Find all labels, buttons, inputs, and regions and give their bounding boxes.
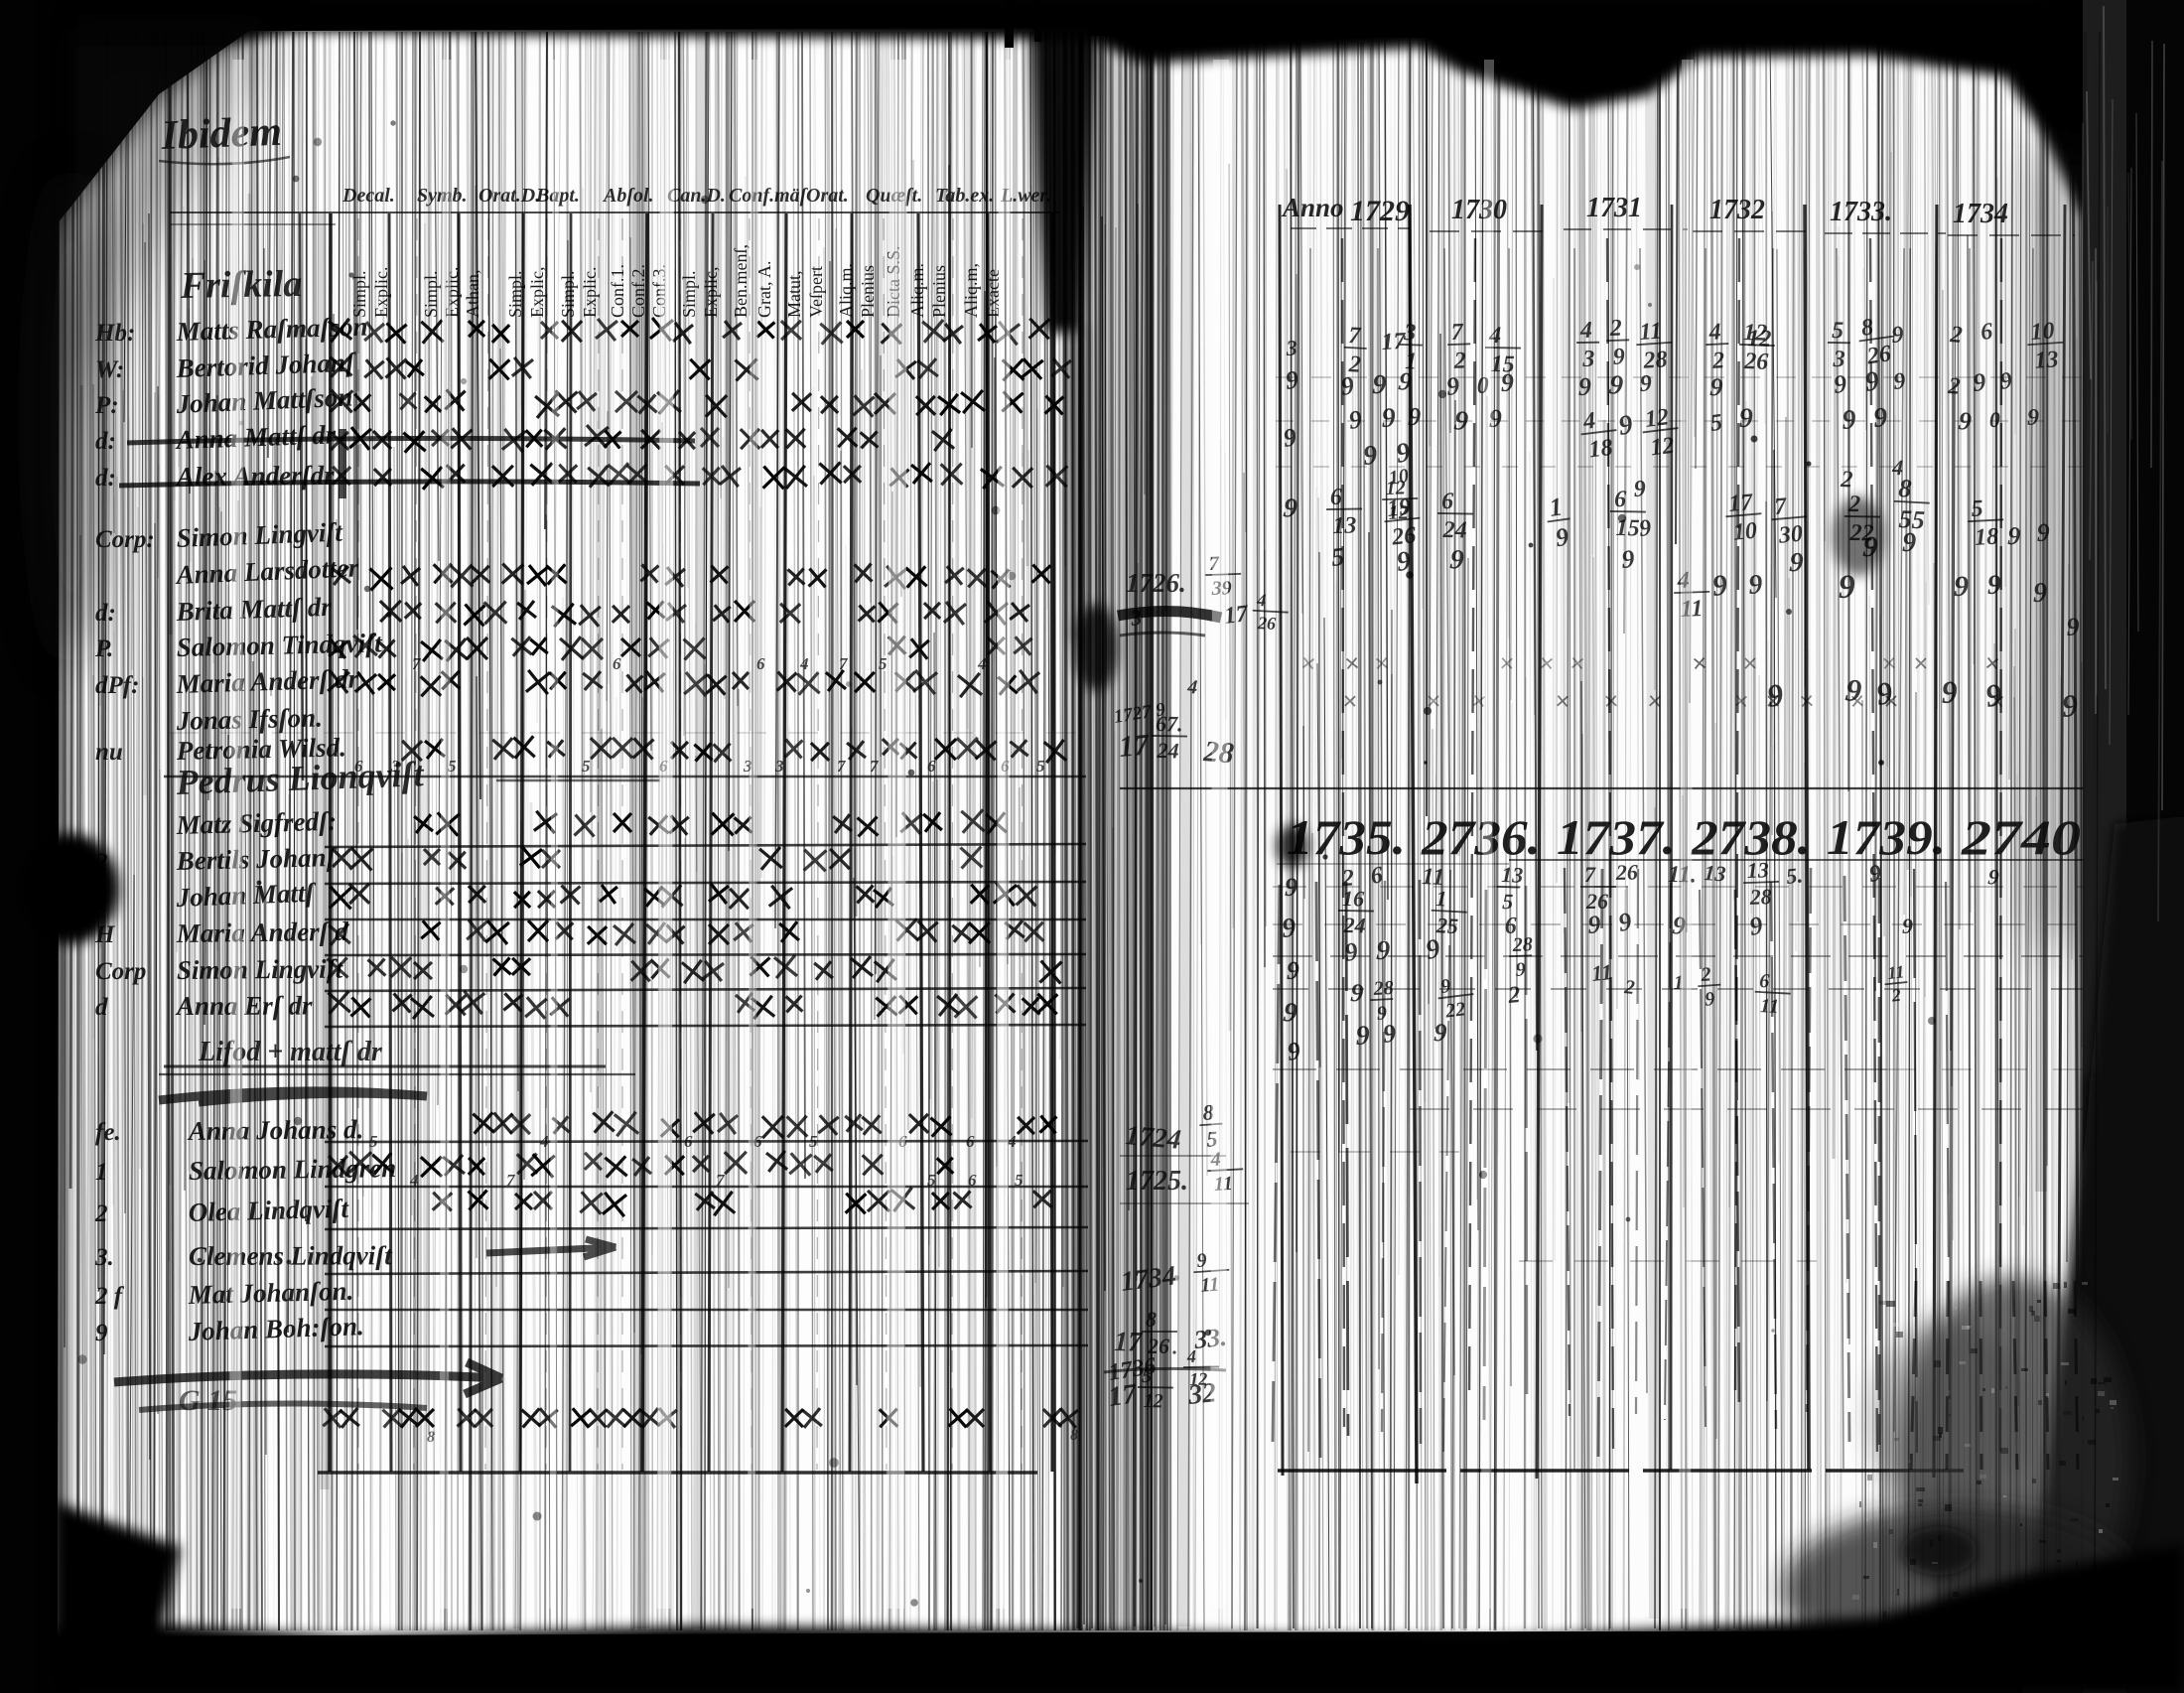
svg-text:Johan Boh:ſon.: Johan Boh:ſon. — [187, 1311, 364, 1346]
svg-text:26: 26 — [1864, 341, 1892, 369]
svg-text:2: 2 — [1948, 322, 1963, 349]
svg-text:d: d — [95, 994, 108, 1021]
svg-text:9: 9 — [1515, 959, 1526, 981]
svg-text:Plenius: Plenius — [858, 265, 878, 318]
svg-text:24: 24 — [1342, 913, 1365, 937]
svg-text:9: 9 — [95, 1320, 108, 1346]
svg-text:11: 11 — [1759, 995, 1779, 1018]
svg-text:Simpl.: Simpl. — [558, 270, 578, 318]
svg-text:2: 2 — [1452, 349, 1466, 374]
svg-text:Orat.: Orat. — [806, 185, 849, 207]
svg-text:25: 25 — [1434, 913, 1458, 938]
svg-text:9: 9 — [1957, 406, 1972, 436]
svg-text:Anno: Anno — [1281, 193, 1344, 222]
svg-text:9: 9 — [1449, 544, 1465, 576]
svg-text:9: 9 — [1282, 493, 1298, 524]
svg-text:2: 2 — [1506, 982, 1521, 1009]
svg-text:9: 9 — [1612, 345, 1625, 370]
svg-text:2736.: 2736. — [1421, 809, 1541, 865]
svg-text:1733.: 1733. — [1830, 197, 1892, 227]
svg-text:Lifod + mattſ dr: Lifod + mattſ dr — [198, 1037, 383, 1067]
svg-text:Simpl.: Simpl. — [421, 270, 441, 318]
svg-text:1: 1 — [1435, 886, 1447, 912]
svg-text:67.: 67. — [1156, 711, 1183, 736]
svg-text:2: 2 — [1710, 348, 1724, 374]
svg-text:5: 5 — [582, 757, 591, 776]
svg-text:24: 24 — [1441, 517, 1466, 543]
svg-text:2738.: 2738. — [1691, 809, 1811, 865]
svg-text:16: 16 — [1342, 886, 1364, 911]
svg-text:Plenius: Plenius — [929, 265, 949, 318]
svg-text:5: 5 — [879, 654, 887, 673]
svg-text:2: 2 — [1700, 963, 1712, 986]
svg-text:4: 4 — [1707, 319, 1721, 346]
svg-text:Bertorid Johanſ: Bertorid Johanſ — [175, 348, 357, 383]
svg-text:Corp: Corp — [95, 958, 146, 985]
svg-text:9: 9 — [1705, 988, 1716, 1011]
svg-text:2: 2 — [94, 1200, 108, 1227]
svg-text:9: 9 — [1196, 1249, 1208, 1272]
svg-text:Conf.mäſ: Conf.mäſ — [729, 185, 809, 207]
svg-text:9: 9 — [1501, 368, 1515, 397]
svg-text:P.: P. — [94, 635, 113, 662]
svg-text:26: 26 — [1257, 613, 1277, 634]
svg-text:9: 9 — [1891, 322, 1905, 349]
svg-text:4: 4 — [799, 654, 809, 673]
svg-text:9: 9 — [1639, 371, 1652, 397]
svg-text:9: 9 — [1709, 372, 1723, 402]
svg-text:6: 6 — [1759, 970, 1770, 992]
svg-text:8: 8 — [1070, 1427, 1078, 1444]
svg-text:9: 9 — [1578, 372, 1592, 401]
svg-text:Aliq.m,: Aliq.m, — [961, 263, 981, 318]
svg-text:4: 4 — [1256, 590, 1267, 610]
svg-text:12: 12 — [1385, 477, 1406, 499]
svg-text:5: 5 — [1971, 495, 1983, 522]
svg-text:13: 13 — [1746, 857, 1769, 883]
svg-text:9: 9 — [1633, 477, 1646, 502]
svg-text:1737.: 1737. — [1557, 809, 1676, 865]
svg-text:Maria Anderſ dr: Maria Anderſ dr — [175, 663, 359, 699]
svg-text:6: 6 — [613, 654, 621, 673]
svg-text:1731: 1731 — [1586, 193, 1642, 223]
svg-text:3: 3 — [774, 757, 784, 776]
svg-text:9: 9 — [1987, 864, 2000, 890]
svg-text:13: 13 — [1501, 862, 1524, 888]
svg-text:2: 2 — [1840, 467, 1853, 494]
svg-text:11: 11 — [1590, 959, 1613, 986]
svg-text:17: 17 — [1114, 1327, 1144, 1358]
svg-text:4: 4 — [409, 1171, 419, 1190]
svg-text:17: 17 — [1118, 728, 1152, 764]
svg-text:5.: 5. — [1785, 862, 1804, 889]
svg-text:1725.: 1725. — [1126, 1166, 1188, 1197]
svg-text:Ben.menſ,: Ben.menſ, — [731, 244, 751, 318]
svg-text:4: 4 — [1579, 318, 1592, 344]
svg-text:1726.: 1726. — [1126, 568, 1186, 598]
svg-text:13: 13 — [1704, 860, 1727, 886]
svg-text:7: 7 — [1450, 320, 1464, 346]
svg-text:9: 9 — [1902, 914, 1913, 938]
svg-text:5: 5 — [809, 1132, 818, 1151]
svg-text:6: 6 — [968, 1171, 977, 1190]
svg-text:6: 6 — [966, 1132, 975, 1151]
svg-text:2: 2 — [1608, 316, 1622, 342]
svg-text:Orat.D.: Orat.D. — [478, 185, 540, 207]
svg-text:0: 0 — [1989, 407, 2000, 432]
svg-text:Explic,: Explic, — [701, 267, 721, 319]
svg-text:7: 7 — [1584, 862, 1596, 887]
svg-text:5: 5 — [1036, 757, 1045, 776]
svg-text:18: 18 — [1974, 524, 1998, 551]
svg-text:1724: 1724 — [1124, 1120, 1181, 1156]
svg-text:9: 9 — [1954, 570, 1969, 603]
svg-text:Brita Mattſ dr: Brita Mattſ dr — [175, 592, 332, 627]
svg-text:9: 9 — [1376, 935, 1391, 966]
svg-text:1: 1 — [95, 1159, 108, 1186]
svg-text:28: 28 — [1748, 884, 1772, 910]
svg-text:2: 2 — [1890, 985, 1902, 1006]
svg-text:6: 6 — [1441, 489, 1453, 514]
svg-text:9: 9 — [1433, 1018, 1447, 1048]
svg-text:8: 8 — [427, 1429, 435, 1446]
svg-text:5: 5 — [1502, 889, 1514, 914]
svg-text:2 f: 2 f — [94, 1283, 125, 1310]
svg-text:9: 9 — [1350, 978, 1364, 1008]
svg-text:fe.: fe. — [95, 1119, 121, 1146]
svg-text:26: 26 — [1615, 860, 1638, 885]
svg-text:d:: d: — [95, 600, 116, 627]
svg-text:6: 6 — [684, 1132, 693, 1151]
svg-text:9: 9 — [1972, 367, 1986, 397]
svg-text:Conf.1.: Conf.1. — [608, 264, 627, 318]
svg-text:5: 5 — [1832, 318, 1843, 344]
svg-text:Johan Mattſ: Johan Mattſ — [175, 878, 318, 913]
svg-text:Mat Johanſon.: Mat Johanſon. — [187, 1276, 353, 1310]
svg-text:Jonas Ifsſon.: Jonas Ifsſon. — [175, 702, 323, 736]
svg-text:3: 3 — [390, 757, 400, 776]
svg-text:28: 28 — [1511, 933, 1533, 956]
svg-text:12: 12 — [1388, 501, 1409, 524]
svg-text:24: 24 — [1156, 738, 1178, 763]
svg-text:dPf:: dPf: — [95, 672, 139, 699]
svg-text:4: 4 — [539, 1132, 549, 1151]
svg-text:Veſpert: Veſpert — [806, 266, 826, 318]
svg-text:2: 2 — [1622, 976, 1635, 999]
svg-text:1730: 1730 — [1451, 195, 1507, 225]
svg-text:9: 9 — [1739, 403, 1754, 434]
svg-text:9: 9 — [2007, 521, 2021, 550]
svg-text:Olea Lindqviſt: Olea Lindqviſt — [188, 1194, 349, 1227]
svg-text:17: 17 — [1107, 1378, 1140, 1413]
svg-text:6: 6 — [1330, 485, 1342, 510]
svg-text:12: 12 — [1143, 1390, 1162, 1412]
svg-text:Simon Lingviſt: Simon Lingviſt — [177, 954, 344, 985]
svg-text:12: 12 — [1649, 433, 1676, 462]
svg-text:1739.: 1739. — [1827, 809, 1946, 865]
svg-text:9: 9 — [1789, 547, 1805, 579]
svg-text:6: 6 — [756, 654, 765, 673]
svg-text:6: 6 — [1614, 487, 1626, 512]
svg-text:9: 9 — [1281, 913, 1297, 944]
svg-text:13: 13 — [1332, 513, 1356, 539]
svg-text:9: 9 — [1381, 403, 1396, 434]
svg-text:9: 9 — [1372, 369, 1387, 400]
svg-text:9: 9 — [1747, 569, 1763, 601]
svg-text:1729: 1729 — [1350, 195, 1410, 227]
svg-text:Explic,: Explic, — [527, 267, 547, 319]
svg-text:9: 9 — [1355, 1021, 1370, 1052]
svg-text:4: 4 — [1186, 676, 1198, 699]
svg-text:4: 4 — [1186, 1346, 1196, 1366]
svg-text:9: 9 — [1620, 544, 1635, 574]
svg-text:5: 5 — [1015, 1171, 1024, 1190]
svg-text:Anna Johans d.: Anna Johans d. — [187, 1114, 364, 1146]
svg-text:9: 9 — [1872, 402, 1889, 434]
svg-text:4: 4 — [977, 654, 987, 673]
svg-text:5: 5 — [369, 1132, 378, 1151]
svg-text:1732: 1732 — [1709, 195, 1765, 225]
